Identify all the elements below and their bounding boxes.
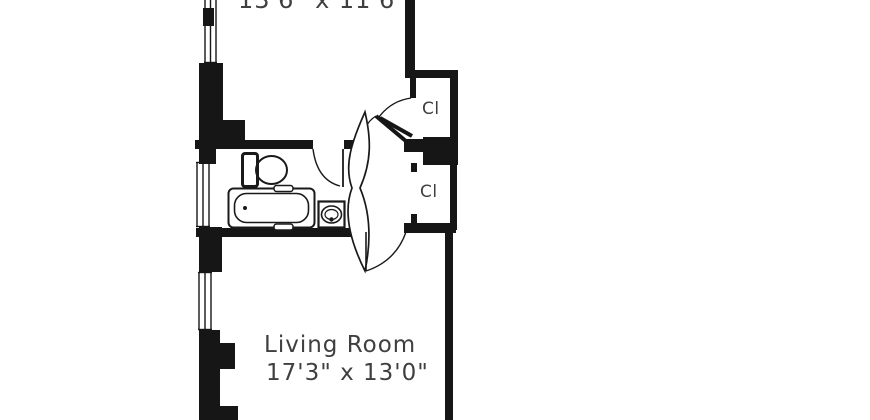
closet-bottom-label: Cl (420, 182, 438, 202)
bathtub (229, 186, 315, 231)
plan-linework (0, 0, 870, 420)
living-room-name-label: Living Room (264, 332, 416, 358)
door-living-room (366, 232, 406, 271)
bedroom-dimensions-label: 13'6" x 11'6" (238, 0, 407, 14)
toilet (243, 154, 288, 187)
window-bedroom (204, 0, 217, 63)
living-room-dimensions-label: 17'3" x 13'0" (266, 360, 429, 386)
window-living-room (198, 272, 212, 330)
window-bathroom (196, 162, 210, 227)
floor-plan: 13'6" x 11'6" Cl Cl Living Room 17'3" x … (0, 0, 870, 420)
sink (319, 202, 345, 228)
door-bathroom (313, 149, 343, 187)
closet-top-label: Cl (422, 99, 440, 119)
